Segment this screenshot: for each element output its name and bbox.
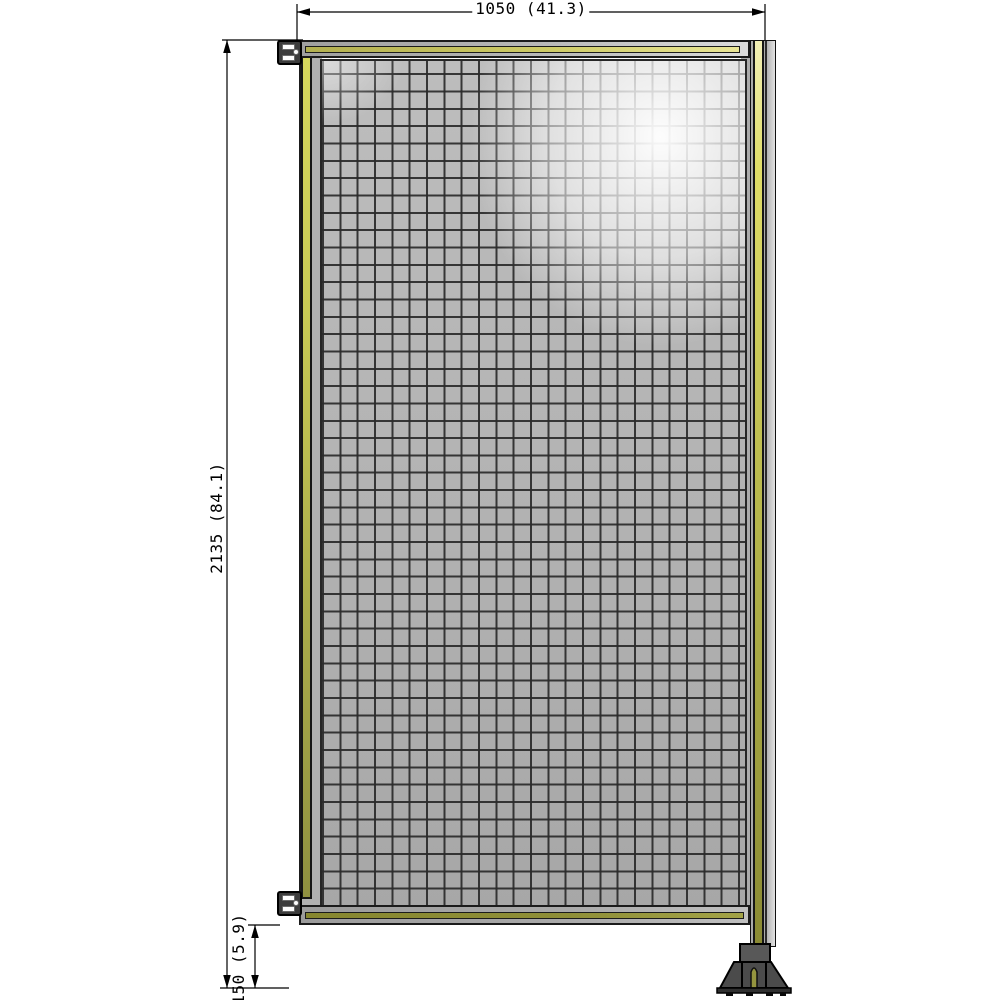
mounting-bracket-bottom [277, 891, 302, 916]
bracket-slot [282, 55, 295, 61]
mounting-bracket-top [277, 40, 302, 65]
post-foot [714, 936, 794, 998]
post-edge-line [765, 41, 767, 946]
width-dimension-label: 1050 (41.3) [472, 0, 589, 18]
top-rail-stripe [305, 46, 740, 53]
drawing-canvas: 1050 (41.3) 2135 (84.1) 150 (5.9) [0, 0, 1000, 1000]
foot-pad [766, 993, 773, 996]
mesh-highlight [322, 61, 745, 907]
height-dimension-label: 2135 (84.1) [208, 462, 226, 573]
clearance-dimension-label: 150 (5.9) [230, 913, 248, 1000]
foot-collar [740, 944, 770, 962]
foot-pad [746, 993, 753, 996]
panel-top-rail [299, 40, 750, 58]
mounting-post [750, 40, 776, 947]
bracket-hole [293, 900, 299, 906]
post-stripe [753, 41, 764, 946]
panel-left-frame [299, 56, 322, 907]
panel-bottom-rail [299, 905, 750, 925]
post-face [767, 41, 775, 946]
bottom-rail-stripe [305, 912, 744, 919]
foot-pad [780, 993, 786, 996]
left-frame-stripe [301, 56, 312, 899]
bracket-hole [293, 49, 299, 55]
foot-base-plate [717, 988, 791, 993]
foot-stripe [751, 968, 757, 988]
wire-mesh-panel [320, 59, 747, 909]
foot-pad [726, 993, 733, 996]
bracket-slot [282, 906, 295, 912]
